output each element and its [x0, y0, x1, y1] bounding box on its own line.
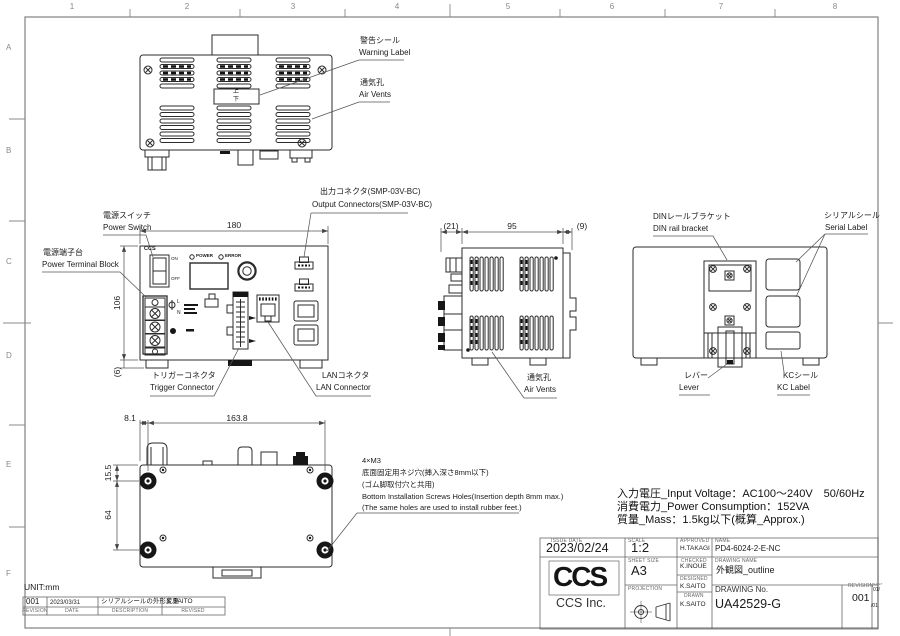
side-view — [438, 248, 576, 365]
dim-bottom-height: 64 — [104, 510, 113, 519]
sheet-header: SHEET — [873, 583, 883, 586]
checked-value: K.INOUE — [680, 564, 707, 571]
line-terminal-label: L — [177, 300, 180, 305]
screw-hole — [160, 467, 166, 473]
front-panel-logo: CCS — [144, 247, 156, 253]
side-air-vents-en: Air Vents — [524, 386, 556, 394]
power-led-label: POWER — [196, 254, 213, 259]
kc-label-en: KC Label — [777, 384, 810, 392]
aux-connector-1 — [294, 301, 318, 321]
frame-col: 8 — [833, 3, 837, 11]
dim-side-left: (21) — [443, 222, 458, 231]
output-label-en: Output Connectors(SMP-03V-BC) — [312, 201, 432, 209]
lan-label-jp: LANコネクタ — [322, 372, 369, 380]
rubber-foot — [140, 473, 157, 490]
frame-row: A — [6, 44, 11, 52]
bottom-note-line: 4×M3 — [362, 457, 381, 465]
output-connector-1 — [295, 257, 313, 269]
air-vents-label-jp: 通気孔 — [360, 79, 384, 87]
top-bracket-tab — [212, 35, 258, 55]
dim-front-foot: (6) — [113, 367, 122, 377]
drawing-name-value: 外観図_outline — [716, 566, 775, 575]
issue-date-value: 2023/02/24 — [546, 542, 609, 555]
power-switch — [150, 255, 169, 287]
frame-row: F — [6, 570, 11, 578]
rear-view — [633, 247, 827, 367]
projection-symbol — [630, 601, 670, 623]
knob — [238, 262, 255, 279]
rubber-foot — [317, 542, 334, 559]
revision-col-header: REVISION — [22, 609, 48, 614]
spec-input-voltage: 入力電圧_Input Voltage：AC100～240V 50/60Hz — [617, 489, 865, 500]
revision-value: 001 — [852, 593, 870, 604]
din-rail-bracket-shape — [704, 261, 756, 367]
din-bracket-label-en: DIN rail bracket — [653, 225, 708, 233]
name-value: PD4-6024-2-E-NC — [715, 545, 780, 553]
drawing-sheet: 1 2 3 4 5 6 7 8 A B C D E F 警告シール Warnin… — [0, 0, 900, 636]
frame-col: 6 — [610, 3, 614, 11]
drawing-name-header: DRAWING NAME — [715, 559, 757, 564]
screw-hole — [307, 535, 313, 541]
serial-label-rect-2 — [766, 296, 800, 327]
lever-label-jp: レバー — [684, 372, 708, 380]
air-vents-label-en: Air Vents — [359, 91, 391, 99]
frame-row: C — [6, 258, 12, 266]
display — [190, 263, 228, 289]
bottom-note-line: Bottom Installation Screws Holes(Inserti… — [362, 493, 563, 501]
designed-value: K.SAITO — [680, 584, 706, 591]
spec-mass: 質量_Mass：1.5kg以下(概算_Approx.) — [617, 515, 805, 526]
dim-front-width: 180 — [227, 221, 241, 230]
terminal-label-en: Power Terminal Block — [42, 261, 119, 269]
din-bracket-label-jp: DINレールブラケット — [653, 213, 731, 221]
output-label-jp: 出力コネクタ(SMP-03V-BC) — [320, 188, 421, 196]
sheet-total: /01 — [871, 604, 878, 609]
drawing-no-header: DRAWING No. — [715, 586, 768, 594]
frame-col: 3 — [291, 3, 295, 11]
frame-col: 5 — [506, 3, 510, 11]
orientation-down: 下 — [233, 97, 239, 103]
screw-hole — [307, 467, 313, 473]
bottom-view-dimensions — [113, 420, 519, 551]
dim-bottom-top: 15.5 — [104, 465, 113, 482]
front-view-dimensions — [42, 213, 408, 396]
frame-col: 1 — [70, 3, 74, 11]
bottom-view — [140, 443, 334, 578]
rating-text-marks — [184, 304, 198, 332]
scale-value: 1:2 — [631, 541, 649, 554]
serial-label-jp: シリアルシール — [824, 212, 880, 220]
trigger-label-en: Trigger Connector — [150, 384, 214, 392]
bottom-note-line: (The same holes are used to install rubb… — [362, 504, 522, 512]
screw-hole — [160, 535, 166, 541]
dim-bottom-width: 163.8 — [226, 414, 247, 423]
dim-bottom-offset: 8.1 — [124, 414, 136, 423]
lever-label-en: Lever — [679, 384, 699, 392]
frame-border — [3, 4, 893, 636]
approved-value: H.TAKAGI — [680, 546, 710, 553]
revision-row-by: K.SAITO — [167, 599, 193, 606]
switch-off-label: OFF — [171, 277, 180, 282]
frame-row: B — [6, 147, 11, 155]
rubber-foot — [140, 542, 157, 559]
drawn-header: DRAWN — [684, 594, 704, 599]
lan-connector-shape — [257, 295, 279, 322]
warning-label-jp: 警告シール — [360, 37, 400, 45]
kc-label-jp: KCシール — [783, 372, 818, 380]
power-led — [190, 255, 194, 259]
dim-side-width: 95 — [507, 222, 516, 231]
output-connector-2 — [295, 279, 313, 291]
din-rail-profile — [563, 253, 576, 358]
line-art — [0, 0, 900, 636]
unit-note: UNIT:mm — [24, 583, 59, 592]
trigger-label-jp: トリガーコネクタ — [152, 372, 216, 380]
projection-header: PROJECTION — [628, 587, 662, 592]
frame-col: 4 — [395, 3, 399, 11]
description-col-header: DESCRIPTION — [112, 609, 148, 614]
top-view — [140, 35, 332, 170]
sheet-current: 01/ — [873, 588, 880, 593]
lan-label-en: LAN Connector — [316, 384, 371, 392]
orientation-up: 上 — [233, 89, 239, 95]
spec-power-consumption: 消費電力_Power Consumption：152VA — [617, 502, 809, 513]
side-view-dimensions — [441, 228, 572, 398]
serial-label-en: Serial Label — [825, 224, 867, 232]
kc-label-rect — [766, 332, 800, 349]
revision-row-date: 2023/03/31 — [50, 600, 80, 606]
serial-label-rect-1 — [766, 259, 800, 290]
dim-side-right: (9) — [577, 222, 587, 231]
frame-row: D — [6, 352, 12, 360]
revision-row-rev: 001 — [26, 598, 39, 606]
designed-header: DESIGNED — [680, 577, 708, 582]
date-col-header: DATE — [65, 609, 79, 614]
warning-label-en: Warning Label — [359, 49, 410, 57]
ccs-logo: CCS — [553, 563, 606, 591]
power-switch-label-en: Power Switch — [103, 224, 151, 232]
aux-connector-2 — [294, 325, 318, 345]
revised-col-header: REVISED — [181, 609, 204, 614]
frame-col: 7 — [719, 3, 723, 11]
error-led — [219, 255, 223, 259]
dim-front-height: 106 — [113, 296, 122, 310]
terminal-label-jp: 電源端子台 — [43, 249, 83, 257]
sheet-size-value: A3 — [631, 564, 647, 577]
approved-header: APPROVED — [680, 539, 709, 544]
frame-row: E — [6, 461, 11, 469]
power-switch-label-jp: 電源スイッチ — [103, 212, 151, 220]
company-name: CCS Inc. — [556, 597, 606, 610]
bottom-note-line: (ゴム脚取付穴と共用) — [362, 481, 435, 489]
neutral-terminal-label: N — [177, 311, 181, 316]
notes-leader — [327, 513, 519, 551]
rubber-foot — [317, 473, 334, 490]
revision-header: REVISION — [848, 584, 874, 589]
switch-on-label: ON — [171, 257, 178, 262]
drawn-value: K.SAITO — [680, 602, 706, 609]
trigger-connector-shape — [227, 292, 256, 349]
frame-col: 2 — [185, 3, 189, 11]
front-view-leaders — [42, 213, 408, 396]
power-terminal-block-shape — [143, 296, 167, 355]
error-led-label: ERROR — [225, 254, 241, 259]
bottom-note-line: 底面固定用ネジ穴(挿入深さ8mm以下) — [362, 469, 489, 477]
front-view — [140, 246, 328, 368]
side-air-vents-jp: 通気孔 — [527, 374, 551, 382]
drawing-no-value: UA42529-G — [715, 598, 781, 611]
